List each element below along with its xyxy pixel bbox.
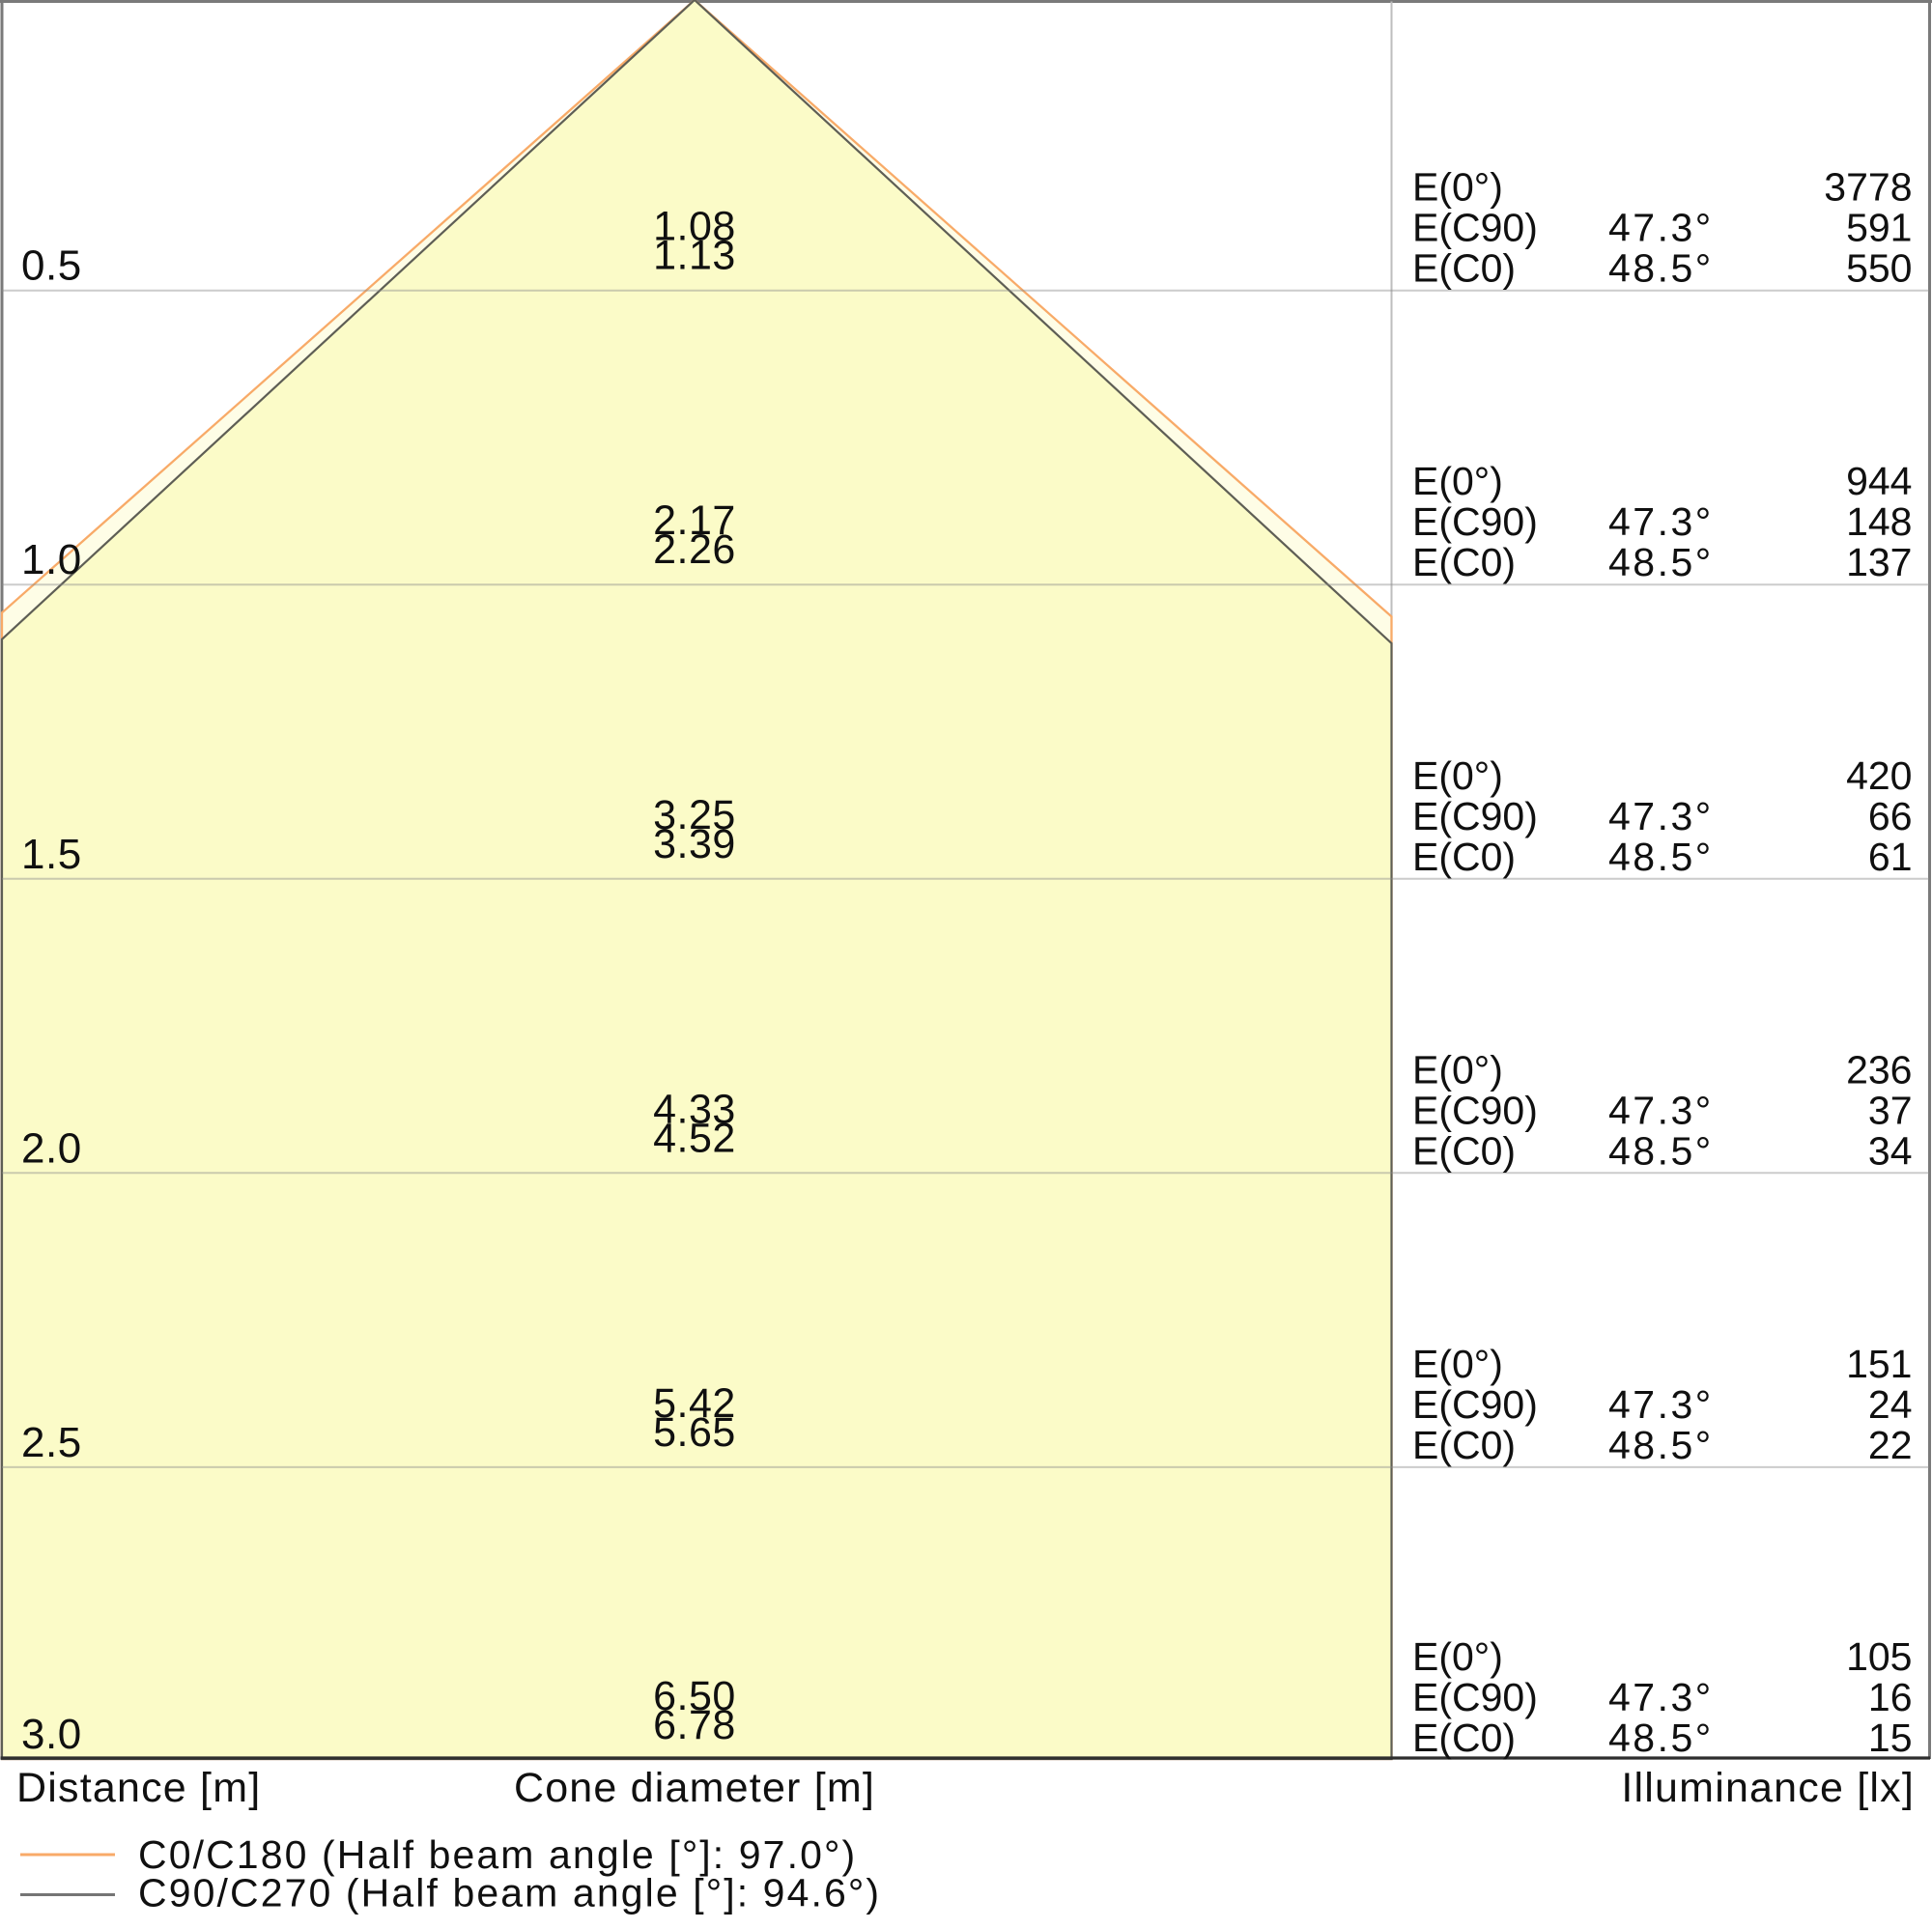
svg-text:E(0°): E(0°) [1412, 1634, 1503, 1679]
svg-text:E(C0): E(C0) [1412, 1423, 1516, 1467]
svg-text:2.0: 2.0 [21, 1124, 82, 1172]
svg-text:48.5°: 48.5° [1608, 1128, 1714, 1173]
svg-text:E(0°): E(0°) [1412, 1342, 1503, 1386]
svg-text:E(C0): E(C0) [1412, 246, 1516, 291]
svg-text:47.3°: 47.3° [1608, 1088, 1714, 1132]
svg-text:E(C90): E(C90) [1412, 206, 1538, 250]
svg-text:137: 137 [1846, 540, 1912, 584]
svg-text:3778: 3778 [1824, 165, 1912, 210]
svg-text:47.3°: 47.3° [1608, 794, 1714, 838]
svg-text:47.3°: 47.3° [1608, 499, 1714, 544]
svg-text:C90/C270 (Half beam angle [°]:: C90/C270 (Half beam angle [°]: 94.6°) [138, 1870, 881, 1915]
svg-text:E(C0): E(C0) [1412, 1128, 1516, 1173]
svg-text:E(0°): E(0°) [1412, 753, 1503, 798]
svg-text:1.5: 1.5 [21, 831, 82, 878]
svg-text:E(C90): E(C90) [1412, 1088, 1538, 1132]
svg-text:24: 24 [1868, 1382, 1913, 1427]
svg-text:4.52: 4.52 [653, 1115, 736, 1161]
svg-text:Cone diameter [m]: Cone diameter [m] [514, 1765, 875, 1811]
svg-text:151: 151 [1846, 1342, 1912, 1386]
svg-text:3.0: 3.0 [21, 1711, 82, 1758]
svg-text:Distance [m]: Distance [m] [16, 1765, 261, 1811]
svg-text:0.5: 0.5 [21, 242, 82, 290]
svg-text:E(C0): E(C0) [1412, 540, 1516, 584]
svg-text:48.5°: 48.5° [1608, 540, 1714, 584]
svg-text:47.3°: 47.3° [1608, 1382, 1714, 1427]
svg-text:236: 236 [1846, 1047, 1912, 1092]
svg-text:E(0°): E(0°) [1412, 165, 1503, 210]
svg-text:550: 550 [1846, 246, 1912, 291]
svg-text:E(C90): E(C90) [1412, 794, 1538, 838]
svg-text:Illuminance [lx]: Illuminance [lx] [1621, 1765, 1915, 1811]
svg-text:3.39: 3.39 [653, 821, 736, 867]
svg-text:48.5°: 48.5° [1608, 1716, 1714, 1760]
svg-text:37: 37 [1868, 1088, 1913, 1132]
svg-text:5.65: 5.65 [653, 1409, 736, 1456]
svg-text:2.26: 2.26 [653, 526, 736, 573]
svg-text:16: 16 [1868, 1675, 1913, 1719]
svg-text:105: 105 [1846, 1634, 1912, 1679]
svg-text:944: 944 [1846, 459, 1912, 503]
svg-text:E(C90): E(C90) [1412, 1675, 1538, 1719]
svg-text:148: 148 [1846, 499, 1912, 544]
svg-text:E(C0): E(C0) [1412, 1716, 1516, 1760]
svg-text:15: 15 [1868, 1716, 1913, 1760]
svg-text:591: 591 [1846, 206, 1912, 250]
svg-text:47.3°: 47.3° [1608, 206, 1714, 250]
svg-text:E(0°): E(0°) [1412, 459, 1503, 503]
svg-text:48.5°: 48.5° [1608, 246, 1714, 291]
svg-text:47.3°: 47.3° [1608, 1675, 1714, 1719]
svg-text:6.78: 6.78 [653, 1702, 736, 1748]
svg-text:2.5: 2.5 [21, 1419, 82, 1466]
svg-text:66: 66 [1868, 794, 1913, 838]
svg-text:22: 22 [1868, 1423, 1913, 1467]
svg-text:E(C0): E(C0) [1412, 835, 1516, 879]
svg-text:E(0°): E(0°) [1412, 1047, 1503, 1092]
svg-text:61: 61 [1868, 835, 1913, 879]
svg-text:48.5°: 48.5° [1608, 1423, 1714, 1467]
svg-text:34: 34 [1868, 1128, 1913, 1173]
svg-text:420: 420 [1846, 753, 1912, 798]
svg-text:E(C90): E(C90) [1412, 499, 1538, 544]
svg-text:48.5°: 48.5° [1608, 835, 1714, 879]
svg-text:1.0: 1.0 [21, 536, 82, 583]
svg-text:1.13: 1.13 [653, 233, 736, 279]
svg-text:E(C90): E(C90) [1412, 1382, 1538, 1427]
